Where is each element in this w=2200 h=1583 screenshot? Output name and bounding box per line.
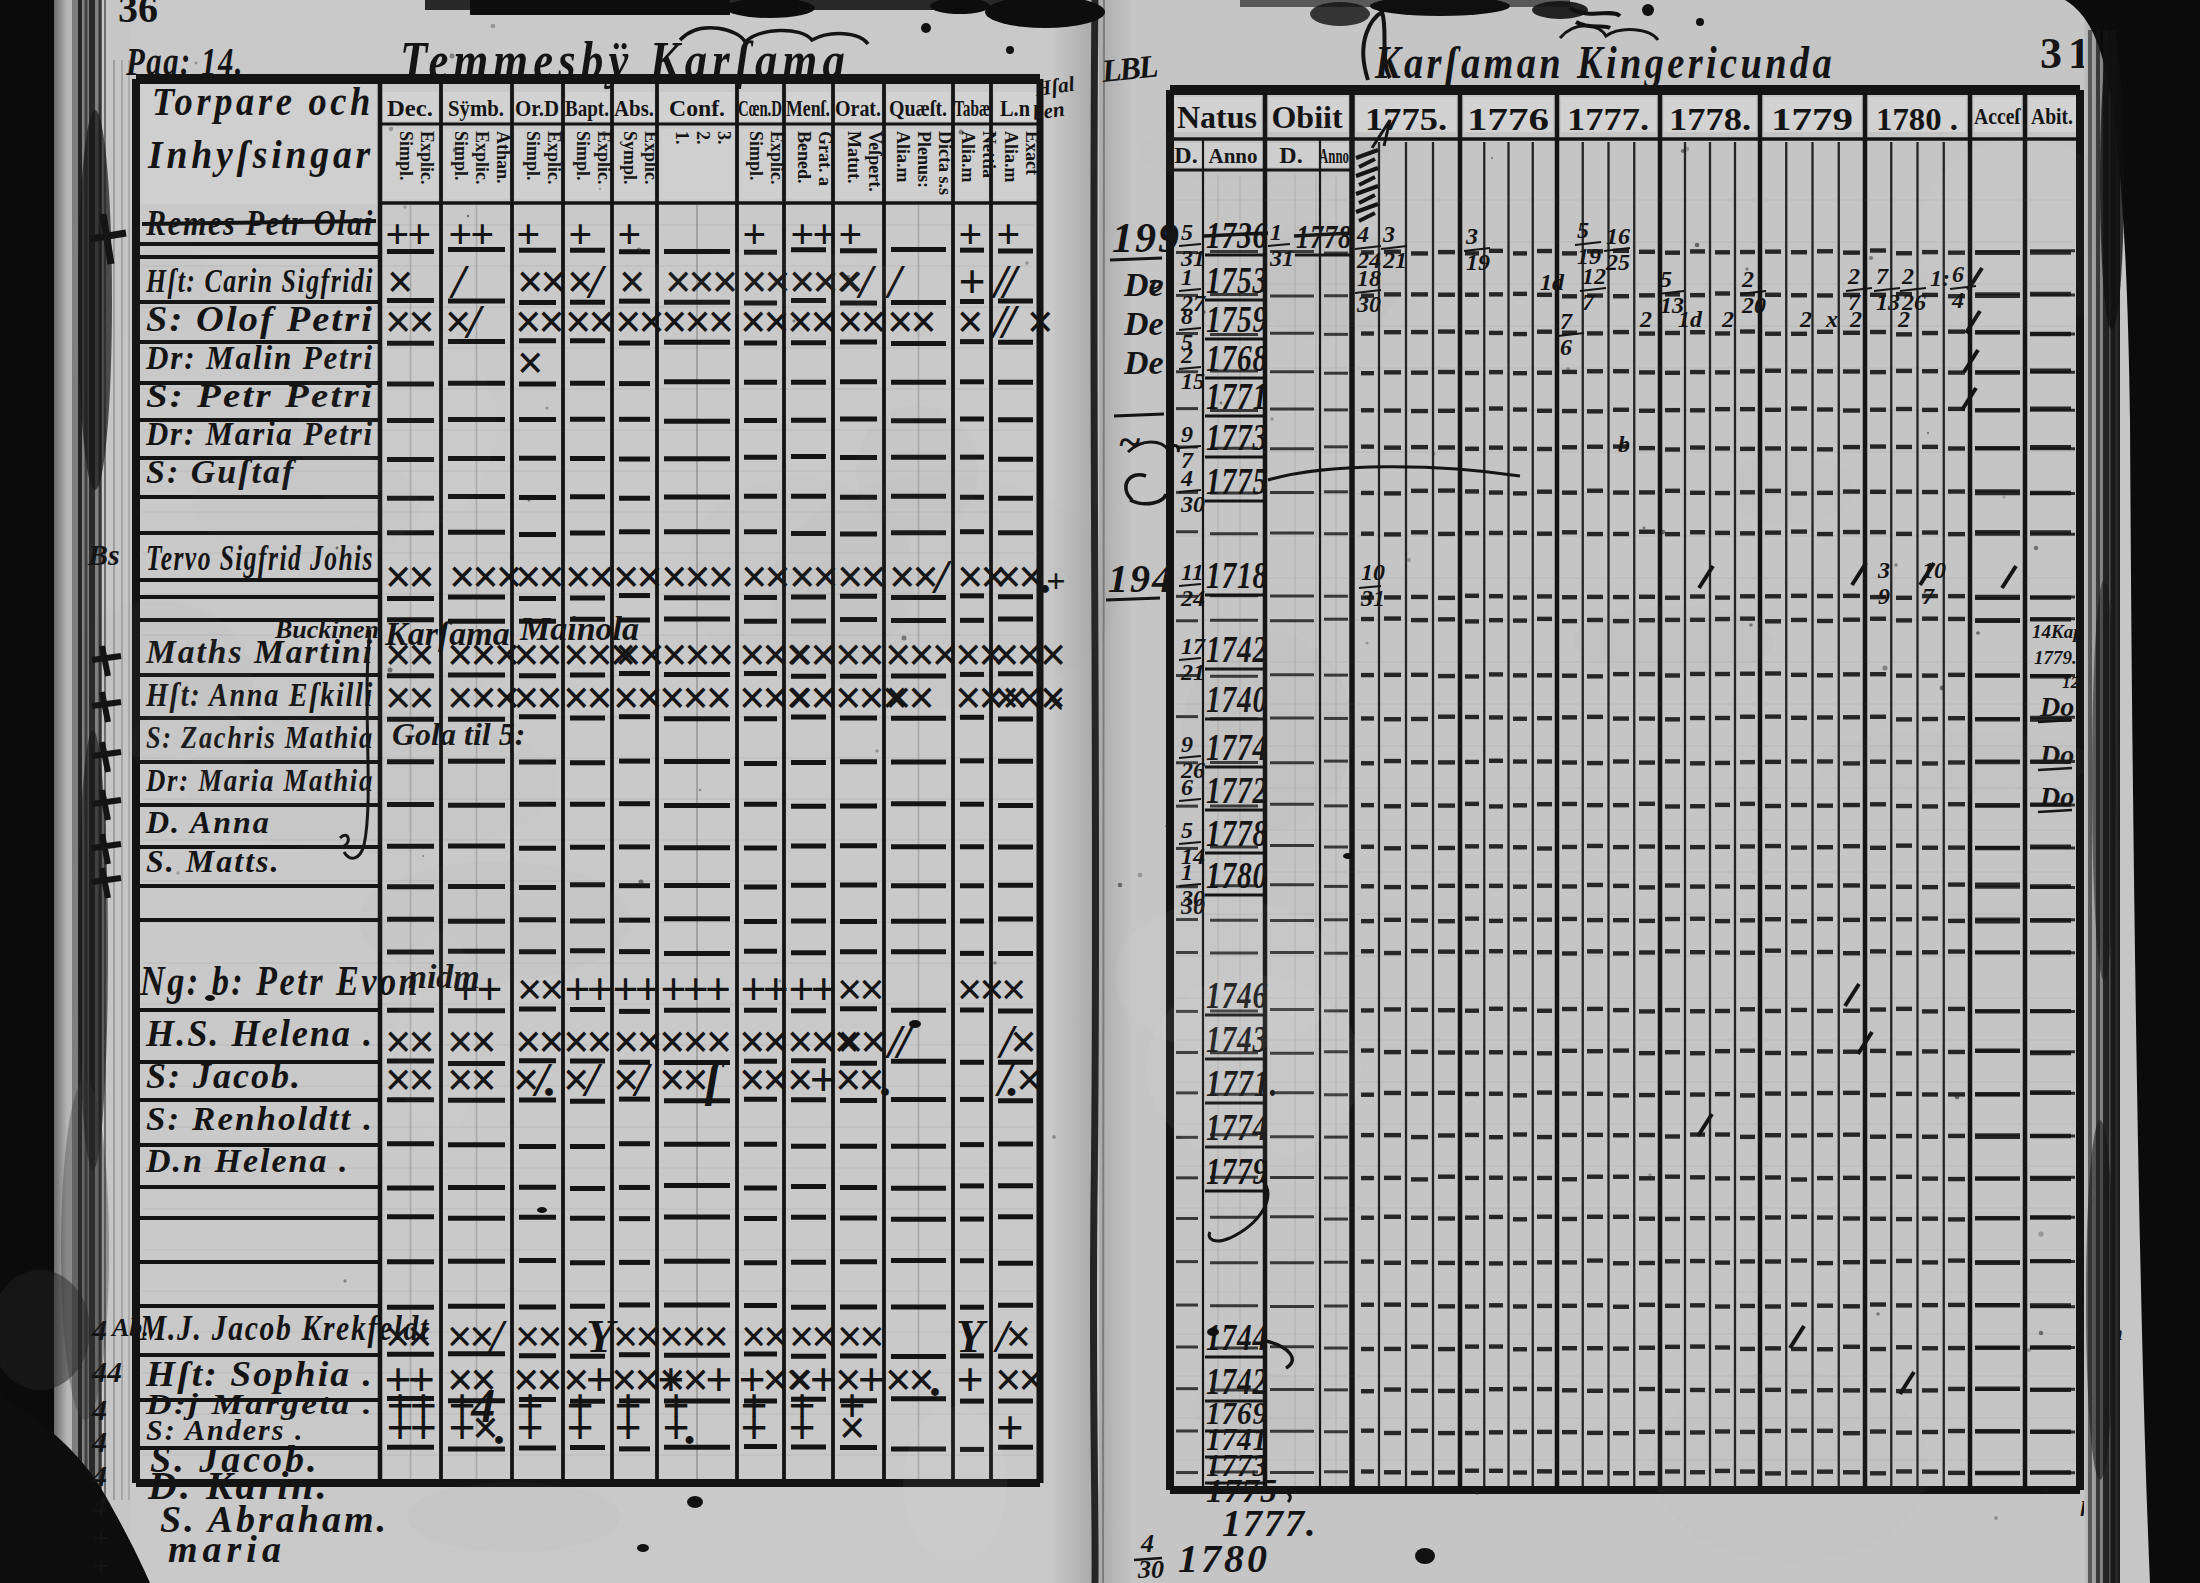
svg-text:Explic.: Explic. (544, 131, 564, 185)
svg-text:××ſ: ××ſ (658, 1053, 725, 1106)
svg-text:1744: 1744 (1206, 1316, 1268, 1358)
svg-text:Simpl.: Simpl. (746, 131, 766, 181)
svg-text:+: + (566, 1401, 592, 1454)
svg-text:3: 3 (1877, 557, 1890, 583)
svg-text:1777.: 1777. (1567, 102, 1649, 137)
svg-text:Quæſt.: Quæſt. (889, 96, 947, 121)
svg-text:De: De (1123, 266, 1164, 303)
svg-text:1d: 1d (1678, 306, 1703, 332)
svg-text:/.×: /.× (995, 1053, 1040, 1106)
svg-text:2: 2 (1721, 306, 1734, 332)
svg-text:15: 15 (1181, 368, 1205, 394)
svg-text:6: 6 (1181, 774, 1193, 800)
svg-text:1775: 1775 (1206, 460, 1268, 502)
svg-text:Inhyſsingar: Inhyſsingar (147, 132, 374, 177)
svg-text:2: 2 (1180, 342, 1193, 368)
svg-text:Explic.: Explic. (594, 131, 614, 185)
svg-text:Sÿmb.: Sÿmb. (448, 96, 504, 121)
svg-text:5: 5 (1577, 217, 1589, 243)
svg-text:12: 12 (2062, 673, 2080, 692)
svg-text:9: 9 (1181, 421, 1193, 447)
svg-text:××: ×× (738, 1053, 786, 1106)
svg-text:Matut.: Matut. (844, 131, 864, 184)
svg-text:16: 16 (1606, 223, 1630, 249)
svg-text:Ab.: Ab. (110, 1313, 149, 1342)
svg-text:Nettia: Nettia (979, 131, 999, 178)
svg-text:Alia.m: Alia.m (958, 131, 978, 183)
svg-text:Pag: 14.: Pag: 14. (125, 39, 244, 84)
svg-text:2.: 2. (693, 131, 713, 145)
svg-text:7: 7 (1582, 289, 1595, 315)
svg-text:1775.: 1775. (1365, 102, 1447, 137)
svg-text:Torpare och: Torpare och (152, 79, 374, 124)
svg-text:Cœn.D: Cœn.D (738, 96, 782, 121)
svg-text:+×.: +×. (448, 1401, 504, 1454)
svg-text:13: 13 (1876, 289, 1900, 315)
svg-text:2: 2 (1799, 306, 1812, 332)
svg-text:Tabæ: Tabæ (954, 96, 990, 121)
svg-text:++: ++ (740, 964, 787, 1015)
svg-text:4: 4 (91, 1489, 107, 1522)
svg-text:1779.4: 1779.4 (2034, 647, 2086, 668)
svg-text:31: 31 (1360, 585, 1385, 611)
svg-text:Orat.: Orat. (835, 96, 881, 121)
svg-text:++: ++ (612, 964, 659, 1015)
svg-text:1: 1 (1181, 859, 1193, 885)
svg-text:2: 2 (1847, 263, 1860, 289)
svg-text:+.: +. (662, 1401, 694, 1454)
svg-text:+: + (788, 1401, 814, 1454)
svg-text:5: 5 (1181, 219, 1193, 245)
svg-text:××: ×× (612, 550, 660, 603)
svg-text:2: 2 (1897, 306, 1910, 332)
svg-text:××.: ××. (884, 1353, 940, 1406)
svg-text:××: ×× (564, 550, 612, 603)
svg-text:Temmesbÿ Karſama: Temmesbÿ Karſama (400, 32, 850, 89)
svg-text:+: + (956, 1353, 982, 1406)
svg-text:Explic.: Explic. (641, 131, 661, 185)
svg-text:Simpl.: Simpl. (396, 131, 416, 181)
svg-text:××.: ××. (834, 1053, 890, 1106)
svg-text:1d: 1d (1540, 269, 1565, 295)
svg-text:194: 194 (1108, 556, 1174, 601)
svg-text:Conf.: Conf. (669, 96, 725, 121)
svg-text:20: 20 (1741, 292, 1766, 318)
svg-text:+++: +++ (660, 964, 729, 1015)
svg-text:5: 5 (1660, 266, 1672, 292)
svg-text:××: ×× (614, 295, 662, 348)
svg-text:Bened.: Bened. (794, 131, 814, 184)
svg-text:×: × (1046, 685, 1064, 721)
svg-text:7: 7 (1560, 308, 1573, 334)
svg-text:2: 2 (1901, 263, 1914, 289)
svg-text:Karſaman Kingericunda: Karſaman Kingericunda (1374, 37, 1835, 88)
svg-text:××: ×× (994, 1353, 1042, 1406)
svg-text:Plenus:: Plenus: (914, 131, 934, 188)
svg-text:Menſ.: Menſ. (786, 96, 830, 121)
svg-text:De: De (1123, 344, 1164, 381)
svg-text:30: 30 (1180, 491, 1205, 517)
svg-text:×××: ××× (448, 550, 520, 603)
svg-text:12: 12 (1582, 263, 1606, 289)
svg-text:×: × (838, 1401, 863, 1454)
svg-text:Sympl.: Sympl. (620, 131, 640, 185)
svg-text:S: Jacob.: S: Jacob. (146, 1056, 302, 1096)
svg-text:De: De (1123, 305, 1164, 342)
svg-text:Or.D: Or.D (515, 96, 559, 121)
svg-text:×: × (1000, 964, 1024, 1015)
svg-text:×: × (516, 336, 541, 389)
svg-text:++: ++ (788, 964, 835, 1015)
svg-text:1771: 1771 (1206, 375, 1268, 417)
svg-text:+: + (740, 1401, 766, 1454)
svg-text:x: x (1825, 306, 1838, 332)
svg-text:Bapt.: Bapt. (565, 96, 609, 121)
svg-text:××: ×× (886, 295, 934, 348)
svg-text:11: 11 (1181, 559, 1204, 585)
svg-text:7: 7 (1876, 263, 1889, 289)
svg-text:4: 4 (91, 1459, 107, 1492)
svg-text:++: ++ (386, 1401, 435, 1454)
svg-text:1773: 1773 (1206, 416, 1268, 458)
svg-text:Abit.: Abit. (2031, 104, 2073, 129)
svg-text:2: 2 (1639, 306, 1652, 332)
svg-text:~: ~ (1118, 419, 1141, 464)
svg-text:S: Renholdtt .: S: Renholdtt . (146, 1100, 374, 1137)
svg-text:maria: maria (168, 1528, 286, 1570)
svg-text:Do: Do (2039, 691, 2074, 722)
svg-text:17: 17 (1181, 633, 1206, 659)
svg-text:199: 199 (1112, 215, 1181, 261)
svg-text:×: × (956, 295, 981, 348)
svg-text:1718: 1718 (1206, 554, 1268, 596)
svg-text:××: ×× (514, 550, 562, 603)
svg-text:1: 1 (1181, 264, 1193, 290)
svg-text:×××: ××× (658, 671, 730, 724)
svg-text:Ng: b: Petr Evon: Ng: b: Petr Evon (139, 958, 420, 1004)
svg-text:H.S. Helena .: H.S. Helena . (145, 1012, 374, 1054)
svg-text:b: b (1618, 431, 1630, 457)
svg-text:44: 44 (91, 1355, 122, 1388)
svg-text:+: + (614, 1401, 640, 1454)
svg-text:Explic.: Explic. (472, 131, 492, 185)
svg-text:Dicta s.s: Dicta s.s (935, 131, 955, 195)
svg-text:LBL: LBL (1099, 47, 1159, 89)
svg-text:××: ×× (956, 964, 1002, 1015)
svg-text:Bs: Bs (87, 538, 120, 571)
svg-text:10: 10 (1361, 559, 1385, 585)
svg-text:4: 4 (1140, 1529, 1154, 1558)
svg-text:Simpl.: Simpl. (523, 131, 543, 181)
svg-text:+: + (516, 1401, 542, 1454)
svg-text:3: 3 (1382, 221, 1395, 247)
svg-text:Athan.: Athan. (493, 131, 513, 184)
svg-text:1.: 1. (672, 131, 692, 145)
svg-text:Acceſ: Acceſ (1974, 104, 2021, 129)
svg-text:4: 4 (91, 1425, 107, 1458)
svg-text:Dec.: Dec. (387, 96, 433, 121)
svg-text:5: 5 (1181, 817, 1193, 843)
svg-text:S. Matts.: S. Matts. (146, 843, 280, 879)
svg-text:1780 .: 1780 . (1876, 102, 1958, 137)
svg-text:D.n Helena .: D.n Helena . (145, 1142, 349, 1179)
svg-text:L.n: L.n (1000, 96, 1030, 121)
svg-text:××: ×× (564, 295, 612, 348)
svg-text:36: 36 (118, 0, 158, 31)
svg-text:1778.: 1778. (1669, 102, 1751, 137)
svg-text:25: 25 (1605, 249, 1630, 275)
svg-text:Abs.: Abs. (614, 96, 654, 121)
svg-text:Simpl.: Simpl. (573, 131, 593, 181)
svg-text:24: 24 (1180, 585, 1205, 611)
svg-text:3: 3 (1465, 223, 1478, 249)
svg-text:Explic.: Explic. (767, 131, 787, 185)
svg-text:9: 9 (1878, 583, 1890, 609)
svg-text:××: ×× (786, 671, 834, 724)
svg-text:1776: 1776 (1467, 102, 1549, 137)
svg-text:×/.: ×/. (512, 1053, 554, 1106)
svg-text:8: 8 (1181, 303, 1193, 329)
svg-text:Explic.: Explic. (417, 131, 437, 185)
svg-text:4: 4 (1180, 465, 1193, 491)
svg-text:Simpl.: Simpl. (451, 131, 471, 181)
svg-text:×+: ×+ (786, 1053, 835, 1106)
svg-text:Exact: Exact (1022, 131, 1042, 175)
svg-text:6: 6 (1560, 334, 1572, 360)
svg-text:××: ×× (612, 671, 660, 724)
svg-text:3.: 3. (714, 131, 734, 145)
svg-text:2: 2 (1849, 306, 1862, 332)
svg-text:××: ×× (384, 550, 432, 603)
svg-text:7: 7 (1922, 583, 1935, 609)
svg-text:Alia.m: Alia.m (893, 131, 913, 183)
svg-text:1768: 1768 (1206, 337, 1268, 379)
svg-text:1780: 1780 (1178, 1536, 1270, 1581)
svg-text:××: ×× (562, 671, 610, 724)
svg-text:19: 19 (1466, 249, 1490, 275)
svg-text:4: 4 (91, 1393, 107, 1426)
svg-text:1780: 1780 (1206, 854, 1268, 896)
svg-text:1779: 1779 (1771, 102, 1853, 137)
svg-text:Alia.m: Alia.m (1001, 131, 1021, 183)
svg-text:10: 10 (1922, 557, 1946, 583)
svg-text:ben: ben (1031, 97, 1066, 125)
svg-text:Veſpert.: Veſpert. (865, 131, 885, 192)
svg-text:4: 4 (91, 1313, 107, 1346)
svg-text:Grat. a: Grat. a (815, 131, 835, 186)
svg-text:×: × (1026, 295, 1051, 348)
svg-text:+: + (92, 1549, 109, 1582)
